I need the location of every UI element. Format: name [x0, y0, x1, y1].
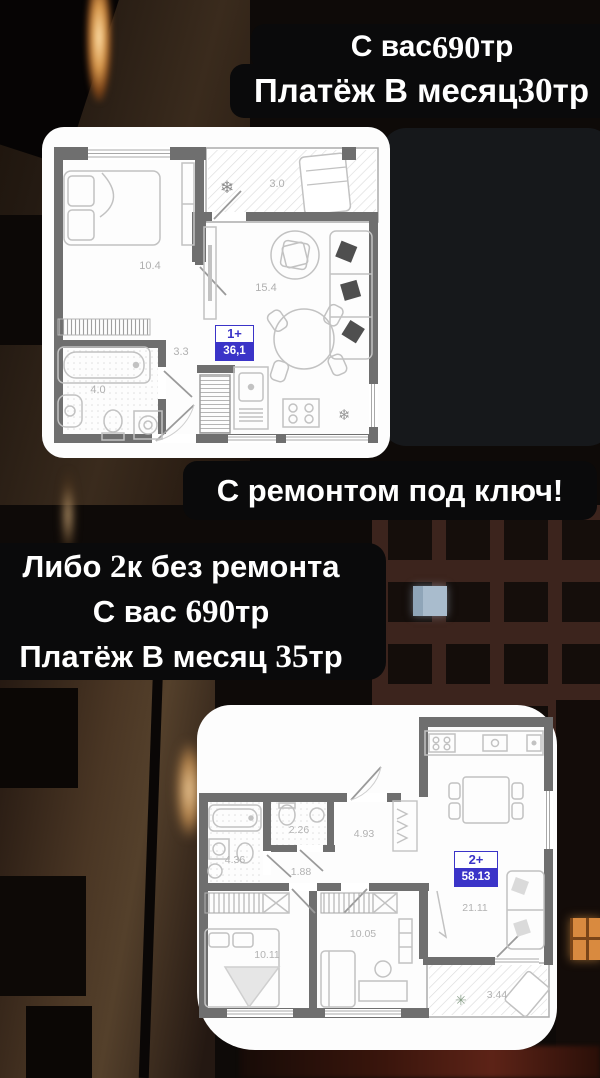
room-area-label: 4.0	[90, 384, 105, 396]
banner-number: 690	[432, 29, 480, 66]
plan2-room2	[321, 893, 412, 1007]
lit-window	[413, 586, 447, 616]
stove-icon	[283, 399, 319, 427]
pillow-icon	[513, 919, 531, 937]
room-area-label: 10.11	[254, 949, 280, 961]
bed-icon	[64, 171, 160, 245]
renovation-banner: С ремонтом под ключ!	[183, 461, 597, 520]
plant-silhouette	[437, 891, 446, 937]
snowflake-icon: ❄	[220, 178, 234, 198]
offer-line-1: Либо 2к без ремонта	[22, 544, 339, 589]
plan1-area-badge: 1+ 36,1	[215, 325, 254, 361]
room-area-label: 3.0	[269, 178, 284, 190]
stove-icon	[429, 734, 455, 752]
banner-text: Платёж В месяц	[19, 639, 275, 674]
room-area-label: 10.05	[350, 928, 376, 940]
plan1-area-value: 36,1	[216, 342, 253, 360]
shelf-icon	[399, 919, 412, 963]
banner-text: С вас	[351, 30, 432, 64]
lounge-chair-icon	[299, 153, 351, 215]
background-window-grid	[388, 520, 432, 560]
plan2-hall-wardrobe	[393, 801, 417, 851]
banner-text: С вас	[93, 594, 186, 629]
dining-table-icon	[274, 309, 334, 369]
plant-icon: ✳	[455, 993, 467, 1009]
wardrobe-icon	[321, 893, 373, 913]
room-area-label: 3.44	[487, 989, 508, 1001]
plan2-kitchen	[425, 731, 543, 823]
banner-number: 30	[517, 71, 552, 111]
offer-banner: Либо 2к без ремонта С вас 690тр Платёж В…	[0, 543, 386, 680]
story-screenshot: ❄	[0, 0, 600, 1078]
fridge-icon	[200, 375, 230, 433]
room-area-label: 1.88	[291, 866, 312, 878]
pillow-icon	[511, 877, 529, 895]
wardrobe-icon	[393, 801, 417, 851]
banner-number: 2	[110, 548, 127, 585]
floor-plan-2-drawing: ✳	[197, 705, 557, 1050]
floor-plan-1-card: ❄	[42, 127, 390, 458]
chair-icon	[375, 961, 391, 977]
room-area-label: 4.36	[225, 854, 246, 866]
pillow-icon	[335, 241, 357, 263]
sink-icon	[483, 735, 507, 751]
floor-plan-2-card: ✳	[197, 705, 557, 1050]
plan2-bath-floor	[208, 802, 263, 882]
price-banner-top-line2: Платёж В месяц 30тр	[230, 64, 600, 118]
plan2-area-value: 58.13	[455, 868, 497, 886]
room-area-label: 21.11	[462, 902, 488, 914]
wardrobe-icon	[205, 893, 263, 913]
offer-line-3: Платёж В месяц 35тр	[19, 634, 342, 679]
ceiling-lamp-icon	[271, 231, 319, 279]
plan2-type-label: 2+	[455, 852, 497, 868]
banner-text: тр	[553, 72, 589, 110]
desk-icon	[359, 981, 407, 1001]
dining-table-icon	[463, 777, 509, 823]
plan1-bedroom-furniture	[58, 163, 194, 335]
banner-text: тр	[235, 594, 269, 629]
room-area-label: 3.3	[173, 346, 188, 358]
offer-line-2: С вас 690тр	[93, 589, 270, 634]
plan2-area-badge: 2+ 58.13	[454, 851, 498, 887]
dark-panel	[382, 128, 600, 446]
pillow-icon	[340, 280, 361, 301]
background-building-right-edge	[556, 700, 600, 1078]
lit-window	[570, 918, 600, 960]
banner-text: к без ремонта	[127, 549, 340, 584]
banner-text: тр	[480, 30, 513, 64]
floor-plan-1-drawing: ❄	[42, 127, 390, 458]
background-window-dark	[0, 876, 86, 996]
small-sofa-icon	[321, 951, 355, 1007]
background-window-dark	[0, 688, 78, 788]
room-area-label: 15.4	[255, 282, 276, 294]
snowflake-icon: ❄	[338, 406, 351, 424]
background-lit-strip	[240, 1046, 600, 1078]
banner-number: 690	[185, 593, 235, 630]
banner-text: Платёж В месяц	[254, 72, 517, 110]
banner-text: С ремонтом под ключ!	[217, 473, 564, 509]
banner-number: 35	[275, 638, 308, 675]
room-area-label: 4.93	[354, 828, 375, 840]
pillow-icon	[341, 320, 364, 343]
room-area-label: 2.26	[289, 824, 310, 836]
room-area-label: 10.4	[139, 260, 160, 272]
background-window-dark	[26, 1006, 92, 1078]
banner-text: Либо	[22, 549, 110, 584]
plan1-kitchen: ❄	[200, 367, 351, 433]
banner-text: тр	[309, 639, 343, 674]
plan1-type-label: 1+	[216, 326, 253, 342]
dresser-icon	[58, 319, 150, 335]
background-light-glow	[86, 0, 112, 102]
